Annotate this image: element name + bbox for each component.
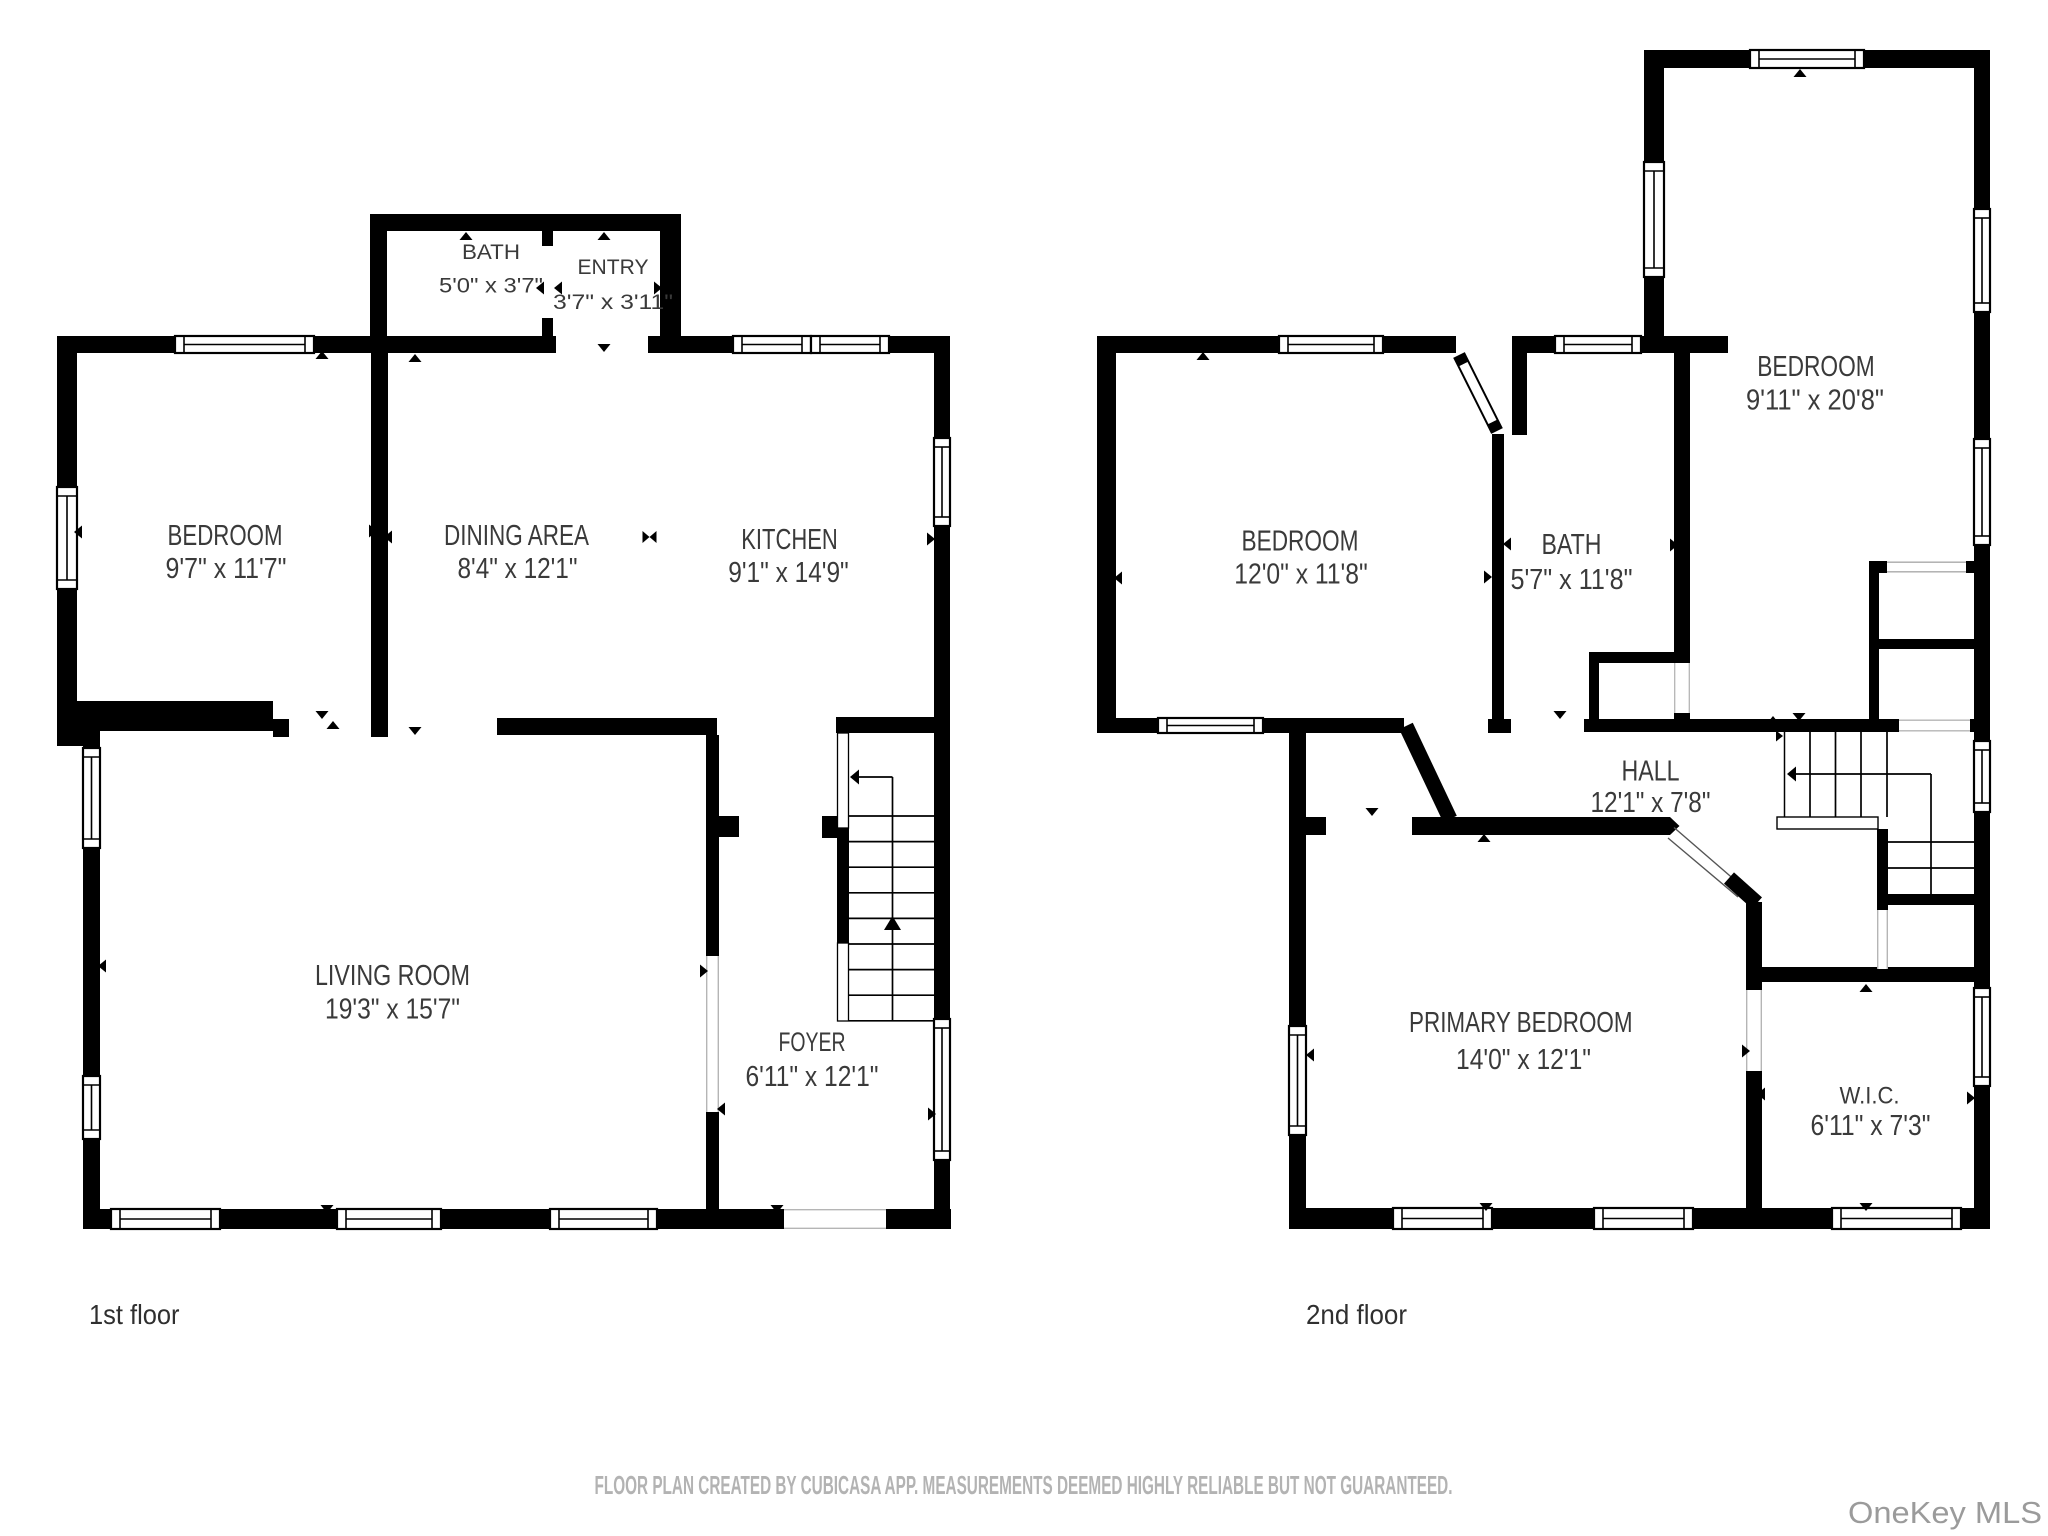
svg-text:ENTRY: ENTRY <box>578 255 649 279</box>
svg-text:OneKey MLS: OneKey MLS <box>1848 1495 2042 1530</box>
svg-text:FOYER: FOYER <box>779 1027 846 1057</box>
svg-text:1st floor: 1st floor <box>89 1299 180 1330</box>
svg-text:5'0" x 3'7": 5'0" x 3'7" <box>439 274 543 298</box>
svg-text:5'7" x 11'8": 5'7" x 11'8" <box>1511 564 1633 596</box>
svg-text:DINING AREA: DINING AREA <box>444 520 589 552</box>
svg-text:3'7" x 3'11": 3'7" x 3'11" <box>553 290 673 314</box>
svg-text:HALL: HALL <box>1622 756 1680 788</box>
svg-text:PRIMARY BEDROOM: PRIMARY BEDROOM <box>1409 1007 1633 1039</box>
svg-text:BATH: BATH <box>1542 529 1602 561</box>
svg-text:6'11" x 7'3": 6'11" x 7'3" <box>1811 1110 1931 1142</box>
svg-text:2nd floor: 2nd floor <box>1306 1299 1407 1330</box>
svg-text:BATH: BATH <box>462 240 520 264</box>
svg-text:W.I.C.: W.I.C. <box>1840 1083 1900 1110</box>
svg-text:LIVING ROOM: LIVING ROOM <box>315 960 470 992</box>
svg-text:BEDROOM: BEDROOM <box>1757 351 1875 383</box>
svg-text:14'0" x 12'1": 14'0" x 12'1" <box>1456 1044 1591 1076</box>
svg-text:9'1" x 14'9": 9'1" x 14'9" <box>728 557 849 589</box>
svg-text:9'7" x 11'7": 9'7" x 11'7" <box>166 553 287 585</box>
svg-text:9'11" x 20'8": 9'11" x 20'8" <box>1746 385 1884 417</box>
svg-text:6'11" x 12'1": 6'11" x 12'1" <box>746 1061 879 1093</box>
svg-text:19'3" x 15'7": 19'3" x 15'7" <box>325 994 460 1026</box>
svg-text:12'0" x 11'8": 12'0" x 11'8" <box>1234 559 1368 591</box>
svg-text:8'4" x 12'1": 8'4" x 12'1" <box>458 553 578 585</box>
svg-text:BEDROOM: BEDROOM <box>168 520 283 552</box>
svg-text:BEDROOM: BEDROOM <box>1242 526 1359 558</box>
svg-text:FLOOR PLAN CREATED BY CUBICASA: FLOOR PLAN CREATED BY CUBICASA APP. MEAS… <box>595 1470 1453 1500</box>
svg-text:KITCHEN: KITCHEN <box>741 524 838 556</box>
svg-text:12'1" x 7'8": 12'1" x 7'8" <box>1591 787 1711 819</box>
